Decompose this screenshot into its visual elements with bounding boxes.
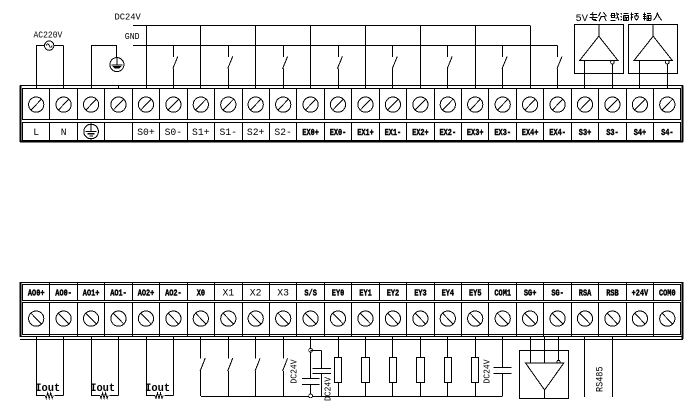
svg-text:S2-: S2-: [274, 128, 292, 139]
svg-text:S4-: S4-: [661, 127, 674, 138]
svg-text:EY3: EY3: [414, 288, 427, 299]
svg-text:EY2: EY2: [387, 288, 400, 299]
svg-text:AO1-: AO1-: [110, 288, 127, 299]
svg-text:X2: X2: [250, 289, 262, 300]
svg-text:+24V: +24V: [632, 288, 649, 299]
svg-text:GND: GND: [125, 32, 140, 42]
svg-text:AC220V: AC220V: [34, 30, 63, 40]
svg-text:S3+: S3+: [579, 127, 592, 138]
svg-text:N: N: [61, 128, 67, 139]
svg-text:EX0-: EX0-: [330, 127, 347, 138]
svg-text:EX1-: EX1-: [385, 127, 402, 138]
svg-text:EX2-: EX2-: [440, 127, 457, 138]
svg-text:S0+: S0+: [137, 128, 155, 139]
svg-text:DC24V: DC24V: [115, 13, 142, 23]
svg-text:RS485: RS485: [596, 367, 607, 393]
svg-text:5V: 5V: [576, 13, 589, 25]
svg-text:AO2+: AO2+: [138, 288, 155, 299]
svg-text:X3: X3: [277, 289, 289, 300]
svg-text:AO0-: AO0-: [55, 288, 72, 299]
svg-text:AO2-: AO2-: [165, 288, 182, 299]
svg-text:EX0+: EX0+: [302, 127, 319, 138]
svg-text:SG-: SG-: [551, 288, 564, 299]
svg-text:S3-: S3-: [606, 127, 619, 138]
svg-text:DC24V: DC24V: [290, 359, 300, 384]
svg-text:SG+: SG+: [524, 288, 537, 299]
svg-text:EX3+: EX3+: [467, 127, 484, 138]
svg-text:EX4+: EX4+: [522, 127, 539, 138]
svg-text:S1-: S1-: [220, 128, 238, 139]
svg-text:X0: X0: [197, 288, 206, 299]
svg-text:S4+: S4+: [634, 127, 647, 138]
svg-text:RSB: RSB: [606, 288, 619, 299]
svg-text:L: L: [33, 128, 39, 139]
svg-text:RSA: RSA: [579, 288, 592, 299]
svg-text:EX1+: EX1+: [357, 127, 374, 138]
svg-text:AO0+: AO0+: [28, 288, 45, 299]
svg-text:S2+: S2+: [247, 128, 265, 139]
svg-text:EY4: EY4: [442, 288, 455, 299]
svg-text:COM1: COM1: [494, 288, 511, 299]
svg-text:EX3-: EX3-: [494, 127, 511, 138]
svg-text:S1+: S1+: [192, 128, 210, 139]
svg-text:EY0: EY0: [332, 288, 345, 299]
svg-text:X1: X1: [223, 289, 235, 300]
svg-text:EX4-: EX4-: [549, 127, 566, 138]
svg-text:EY5: EY5: [469, 288, 482, 299]
svg-text:EX2+: EX2+: [412, 127, 429, 138]
svg-text:AO1+: AO1+: [83, 288, 100, 299]
svg-text:DC24V: DC24V: [324, 376, 334, 401]
svg-text:S0-: S0-: [165, 128, 183, 139]
svg-text:COM0: COM0: [659, 288, 676, 299]
svg-text:EY1: EY1: [359, 288, 372, 299]
svg-text:S/S: S/S: [304, 288, 317, 299]
svg-text:DC24V: DC24V: [483, 359, 493, 384]
